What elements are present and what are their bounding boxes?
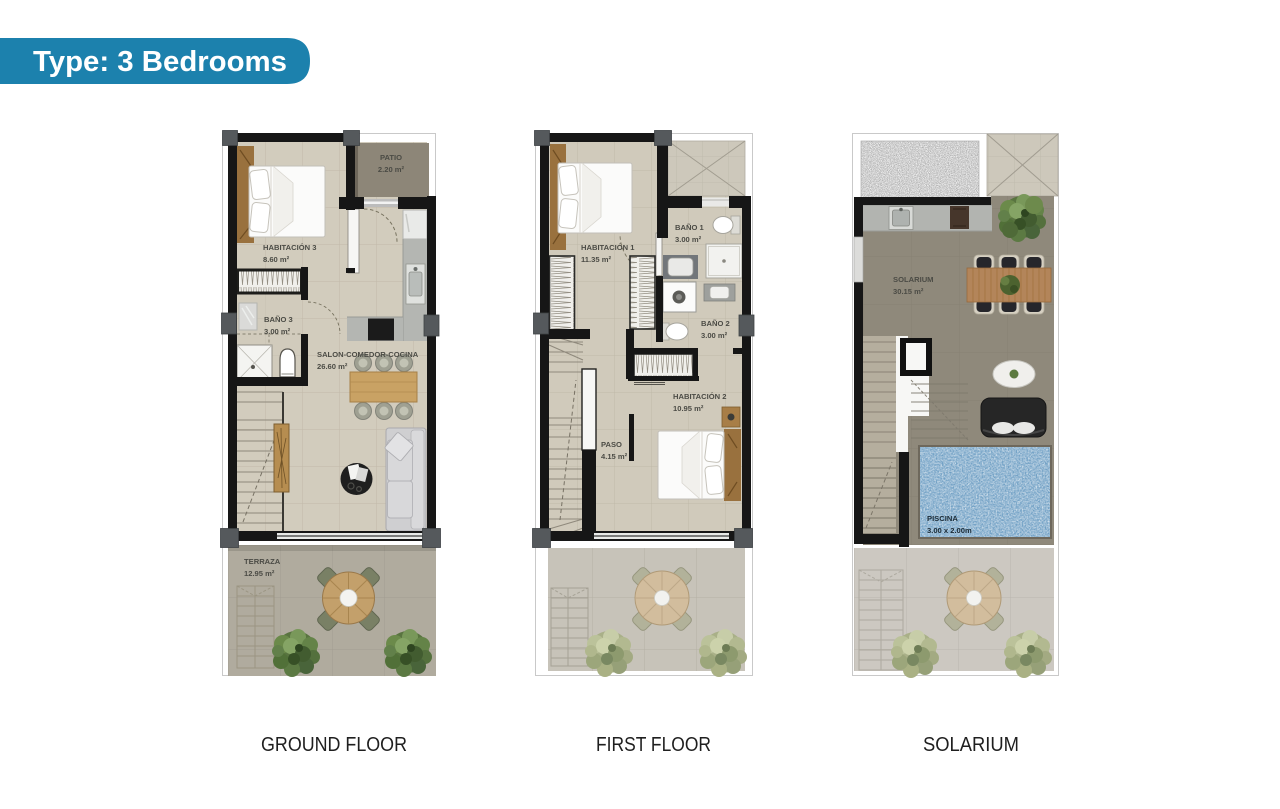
svg-text:3.00 x 2.00m: 3.00 x 2.00m — [927, 526, 972, 535]
svg-text:PATIO: PATIO — [380, 153, 402, 162]
svg-text:26.60 m²: 26.60 m² — [317, 362, 348, 371]
svg-text:SOLARIUM: SOLARIUM — [893, 275, 934, 284]
svg-text:3.00 m²: 3.00 m² — [264, 327, 291, 336]
svg-text:4.15 m²: 4.15 m² — [601, 452, 628, 461]
svg-text:HABITACIÓN 2: HABITACIÓN 2 — [673, 392, 726, 401]
svg-text:TERRAZA: TERRAZA — [244, 557, 281, 566]
svg-text:GROUND FLOOR: GROUND FLOOR — [261, 734, 407, 756]
svg-text:SALON-COMEDOR-COCINA: SALON-COMEDOR-COCINA — [317, 350, 419, 359]
svg-text:3.00 m²: 3.00 m² — [675, 235, 702, 244]
svg-text:SOLARIUM: SOLARIUM — [923, 734, 1019, 756]
svg-text:10.95 m²: 10.95 m² — [673, 404, 704, 413]
svg-text:2.20 m²: 2.20 m² — [378, 165, 405, 174]
svg-text:11.35 m²: 11.35 m² — [581, 255, 611, 264]
svg-text:3.00 m²: 3.00 m² — [701, 331, 728, 340]
svg-text:BAÑO 3: BAÑO 3 — [264, 315, 293, 324]
svg-text:PISCINA: PISCINA — [927, 514, 958, 523]
svg-text:FIRST FLOOR: FIRST FLOOR — [596, 734, 711, 756]
svg-text:HABITACIÓN 3: HABITACIÓN 3 — [263, 243, 316, 252]
svg-text:BAÑO 1: BAÑO 1 — [675, 223, 704, 232]
svg-text:12.95 m²: 12.95 m² — [244, 569, 275, 578]
svg-text:8.60 m²: 8.60 m² — [263, 255, 290, 264]
svg-text:PASO: PASO — [601, 440, 622, 449]
svg-text:HABITACIÓN 1: HABITACIÓN 1 — [581, 243, 635, 252]
svg-text:30.15 m²: 30.15 m² — [893, 287, 924, 296]
svg-text:BAÑO 2: BAÑO 2 — [701, 319, 730, 328]
svg-text:Type: 3 Bedrooms: Type: 3 Bedrooms — [33, 46, 287, 78]
